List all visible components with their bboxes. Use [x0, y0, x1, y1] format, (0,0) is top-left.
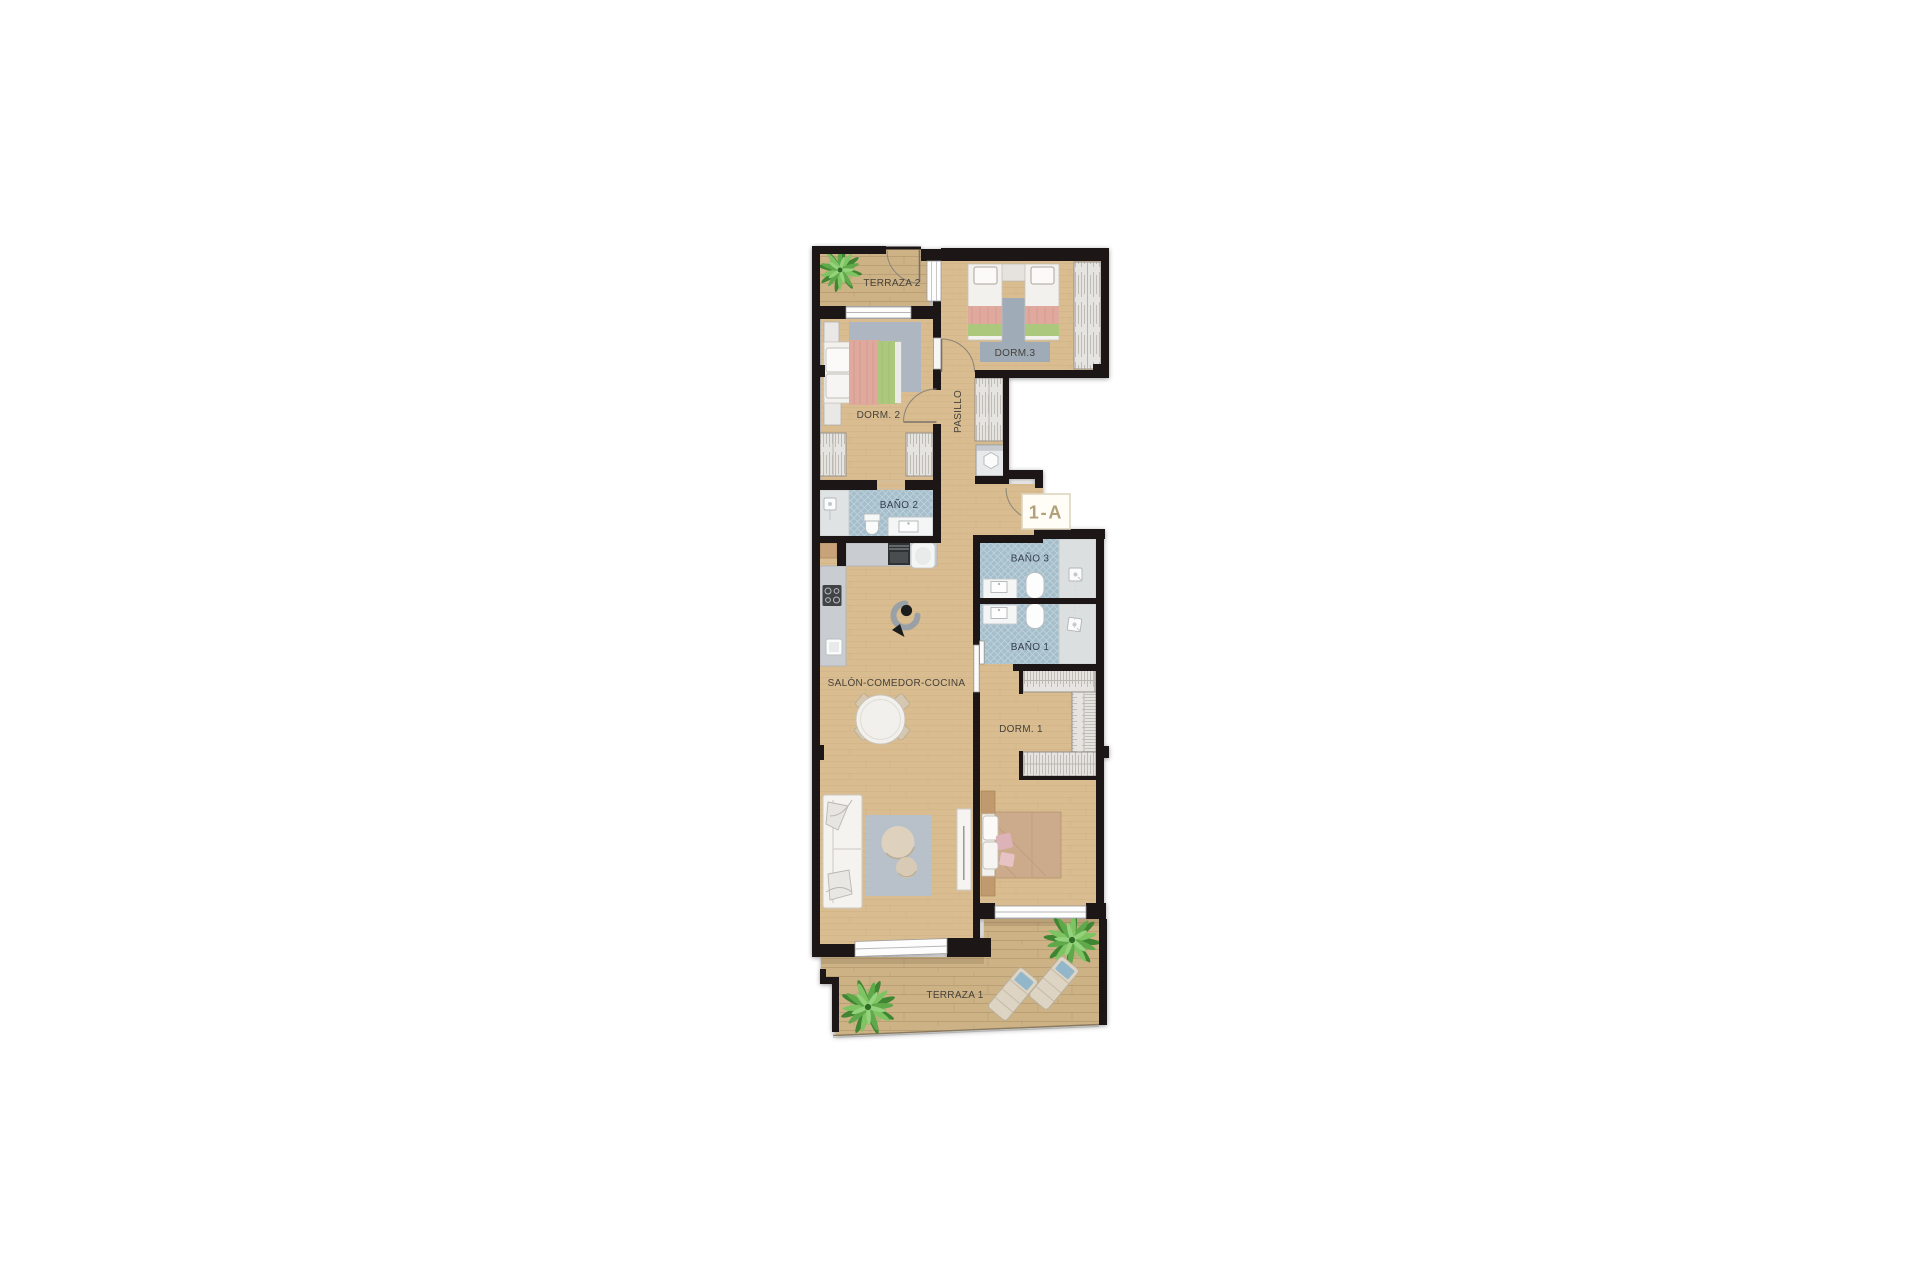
svg-text:DORM. 2: DORM. 2 — [857, 410, 901, 421]
svg-text:BAÑO 2: BAÑO 2 — [880, 498, 919, 511]
svg-text:TERRAZA 2: TERRAZA 2 — [863, 278, 920, 289]
svg-text:1-A: 1-A — [1029, 503, 1063, 523]
svg-text:PASILLO: PASILLO — [953, 390, 964, 433]
svg-text:DORM. 1: DORM. 1 — [999, 724, 1043, 735]
svg-text:TERRAZA 1: TERRAZA 1 — [926, 990, 983, 1001]
svg-text:BAÑO 3: BAÑO 3 — [1011, 552, 1050, 565]
svg-text:DORM.3: DORM.3 — [995, 348, 1036, 359]
svg-text:SALÓN-COMEDOR-COCINA: SALÓN-COMEDOR-COCINA — [828, 676, 966, 689]
svg-text:BAÑO 1: BAÑO 1 — [1011, 640, 1050, 653]
